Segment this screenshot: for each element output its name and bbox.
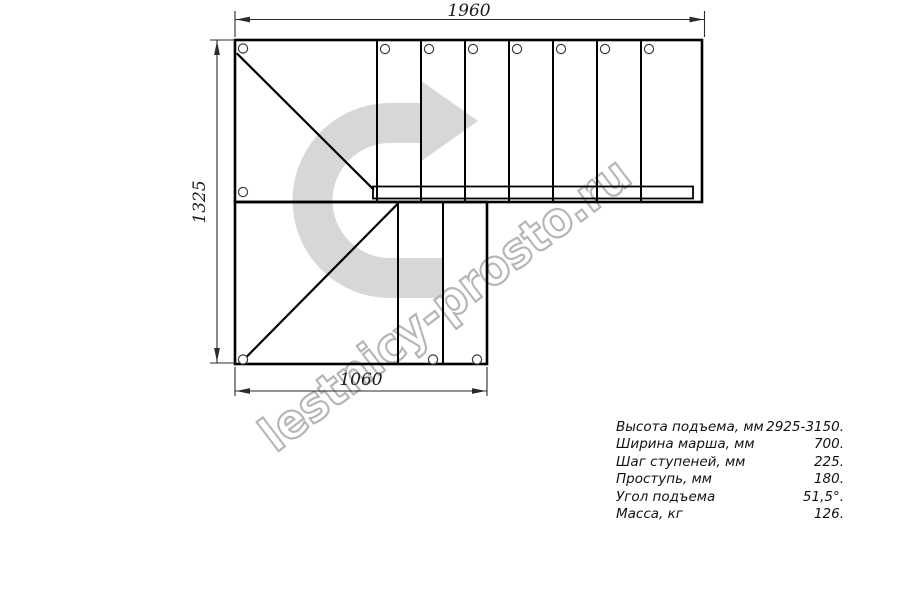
dimension-bottom-width-label: 1060: [339, 370, 382, 390]
spec-label: Шаг ступеней, мм: [616, 454, 745, 471]
spec-row-mass: Масса, кг 126.: [616, 506, 844, 523]
spec-label: Масса, кг: [616, 506, 683, 523]
spec-value: 700.: [814, 436, 844, 453]
spec-row-height: Высота подъема, мм 2925-3150.: [616, 419, 844, 436]
spec-label: Проступь, мм: [616, 471, 712, 488]
spec-label: Высота подъема, мм: [616, 419, 764, 436]
spec-value: 126.: [814, 506, 844, 523]
spec-row-flight-width: Ширина марша, мм 700.: [616, 436, 844, 453]
spec-row-step: Шаг ступеней, мм 225.: [616, 454, 844, 471]
spec-label: Угол подъема: [616, 489, 715, 506]
dimension-top-width-label: 1960: [447, 1, 490, 21]
spec-row-tread: Проступь, мм 180.: [616, 471, 844, 488]
spec-value: 225.: [814, 454, 844, 471]
dimension-left-height-label: 1325: [190, 180, 210, 223]
spec-label: Ширина марша, мм: [616, 436, 755, 453]
spec-value: 2925-3150.: [766, 419, 844, 436]
spec-row-angle: Угол подъема 51,5°.: [616, 489, 844, 506]
stair-drawing-page: lestnicy-prosto.ru: [0, 0, 900, 600]
spec-value: 51,5°.: [803, 489, 844, 506]
dimension-left-height: [210, 40, 237, 363]
spec-table: Высота подъема, мм 2925-3150. Ширина мар…: [616, 419, 844, 523]
spec-value: 180.: [814, 471, 844, 488]
